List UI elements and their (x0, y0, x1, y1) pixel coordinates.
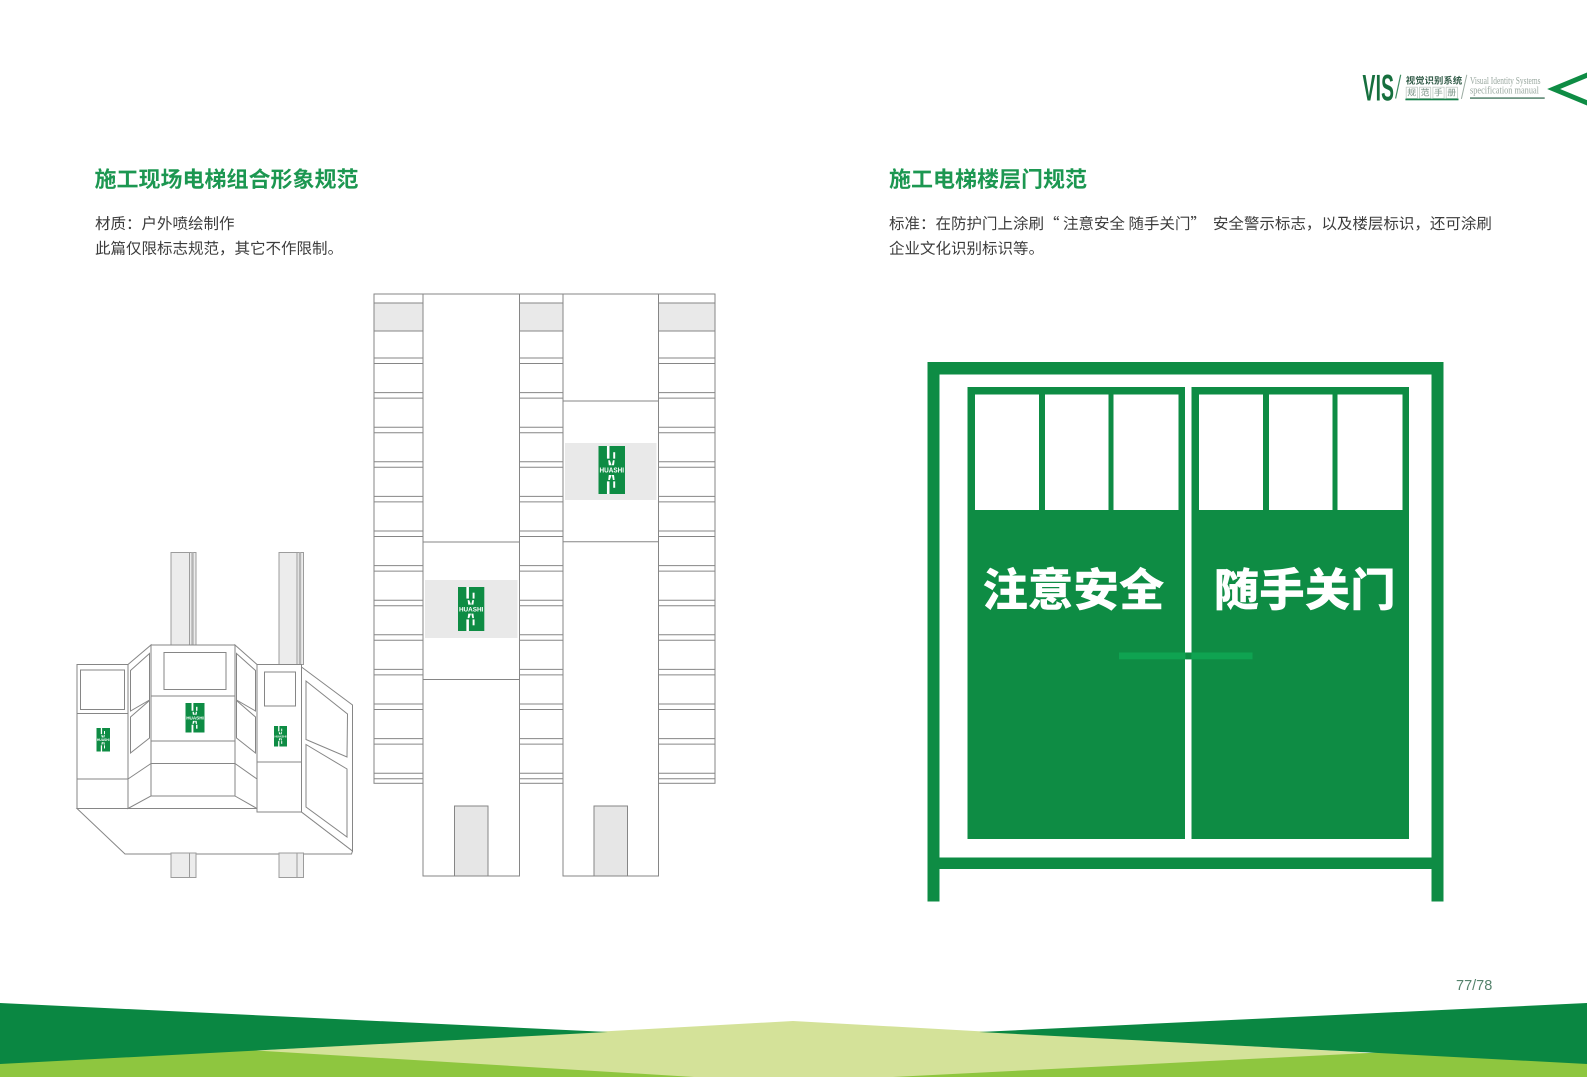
svg-text:77/78: 77/78 (1456, 978, 1492, 994)
